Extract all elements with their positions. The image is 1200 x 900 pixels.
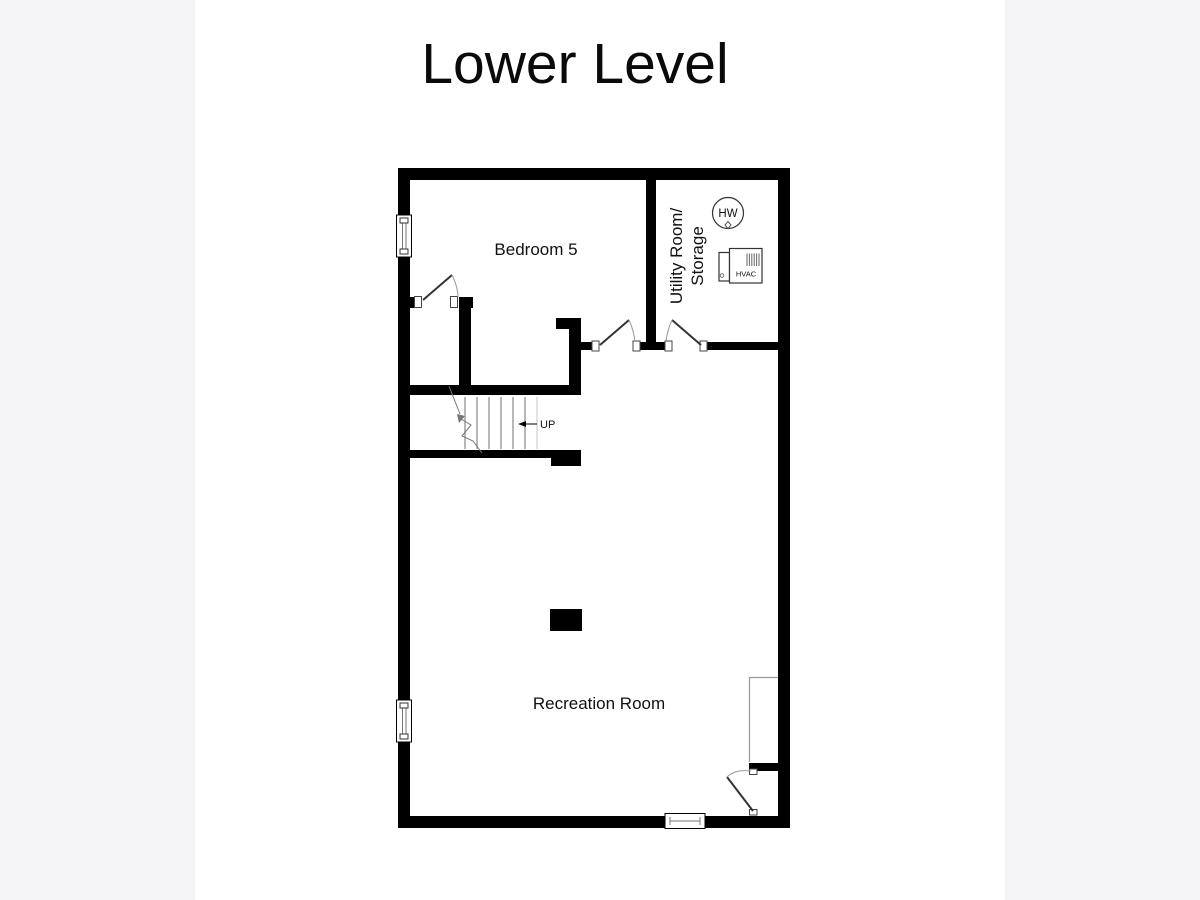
page-title: Lower Level bbox=[421, 31, 728, 97]
door-swing-recreation bbox=[727, 771, 753, 811]
room-label-bedroom-5: Bedroom 5 bbox=[494, 240, 577, 260]
hvac-label: HVAC bbox=[736, 270, 757, 279]
staircase: UP bbox=[449, 386, 555, 453]
water-heater-icon: HW bbox=[713, 198, 744, 229]
window-symbol-left-upper bbox=[397, 215, 412, 257]
room-label-recreation-room: Recreation Room bbox=[533, 694, 665, 714]
support-column bbox=[550, 609, 582, 631]
up-label: UP bbox=[540, 419, 555, 431]
floor-plan-drawing: UP HW HVAC bbox=[0, 0, 1200, 900]
door-swing-hall bbox=[600, 320, 635, 345]
room-label-utility-storage: Utility Room/ Storage bbox=[666, 208, 708, 304]
areaway-outline bbox=[750, 678, 779, 763]
up-arrow bbox=[518, 421, 537, 427]
utility-label-line2: Storage bbox=[687, 208, 708, 304]
floor-plan-screenshot: { "title": "Lower Level", "rooms": [ { "… bbox=[0, 0, 1200, 900]
break-arrowhead bbox=[457, 414, 465, 423]
water-heater-label: HW bbox=[718, 208, 737, 220]
utility-label-line1: Utility Room/ bbox=[666, 208, 687, 304]
window-symbol-bottom bbox=[665, 814, 705, 829]
hvac-unit-icon: HVAC bbox=[719, 249, 762, 284]
window-symbol-left-lower bbox=[397, 700, 412, 742]
